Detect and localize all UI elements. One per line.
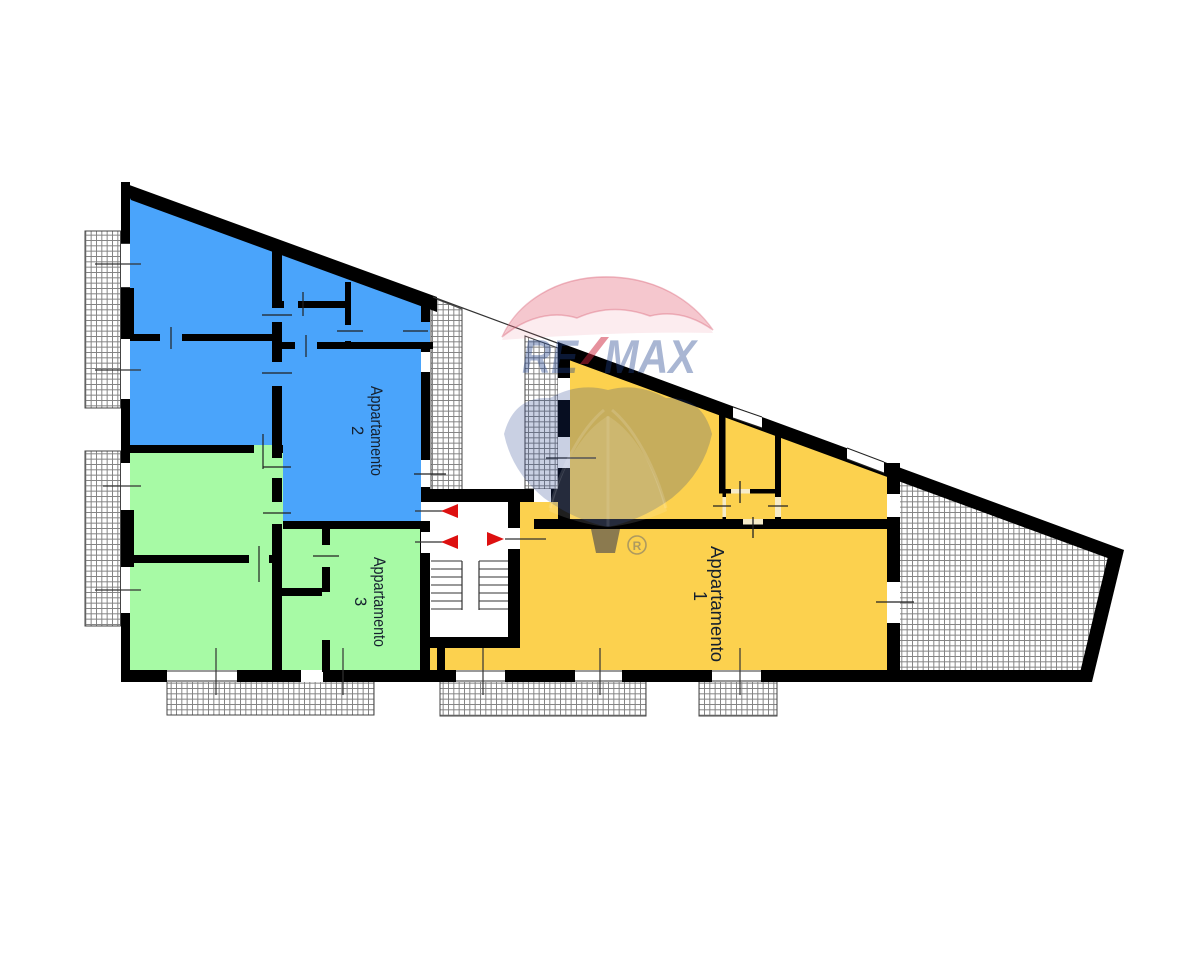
svg-text:Appartamento: Appartamento	[707, 546, 727, 662]
svg-text:3: 3	[351, 597, 369, 606]
svg-text:1: 1	[690, 591, 710, 601]
svg-text:R: R	[633, 539, 642, 553]
svg-text:2: 2	[348, 426, 366, 435]
svg-text:Appartamento: Appartamento	[367, 386, 385, 476]
svg-text:MAX: MAX	[604, 330, 698, 383]
svg-text:Appartamento: Appartamento	[370, 557, 388, 647]
svg-text:RE: RE	[522, 330, 579, 383]
